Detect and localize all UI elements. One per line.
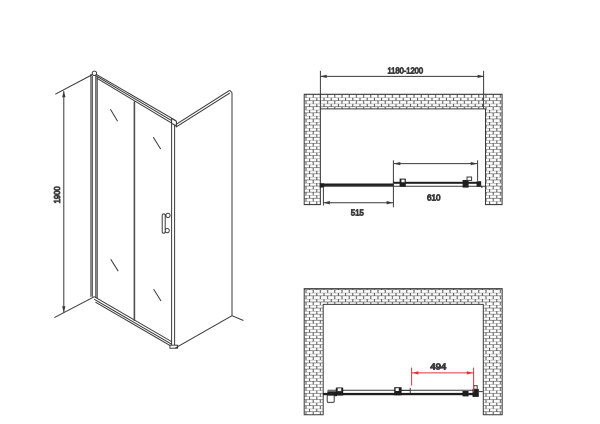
svg-text:1180-1200: 1180-1200 <box>388 65 424 75</box>
svg-text:610: 610 <box>427 192 441 202</box>
svg-text:1900: 1900 <box>52 186 62 203</box>
svg-text:515: 515 <box>351 208 364 218</box>
svg-text:494: 494 <box>430 361 446 371</box>
